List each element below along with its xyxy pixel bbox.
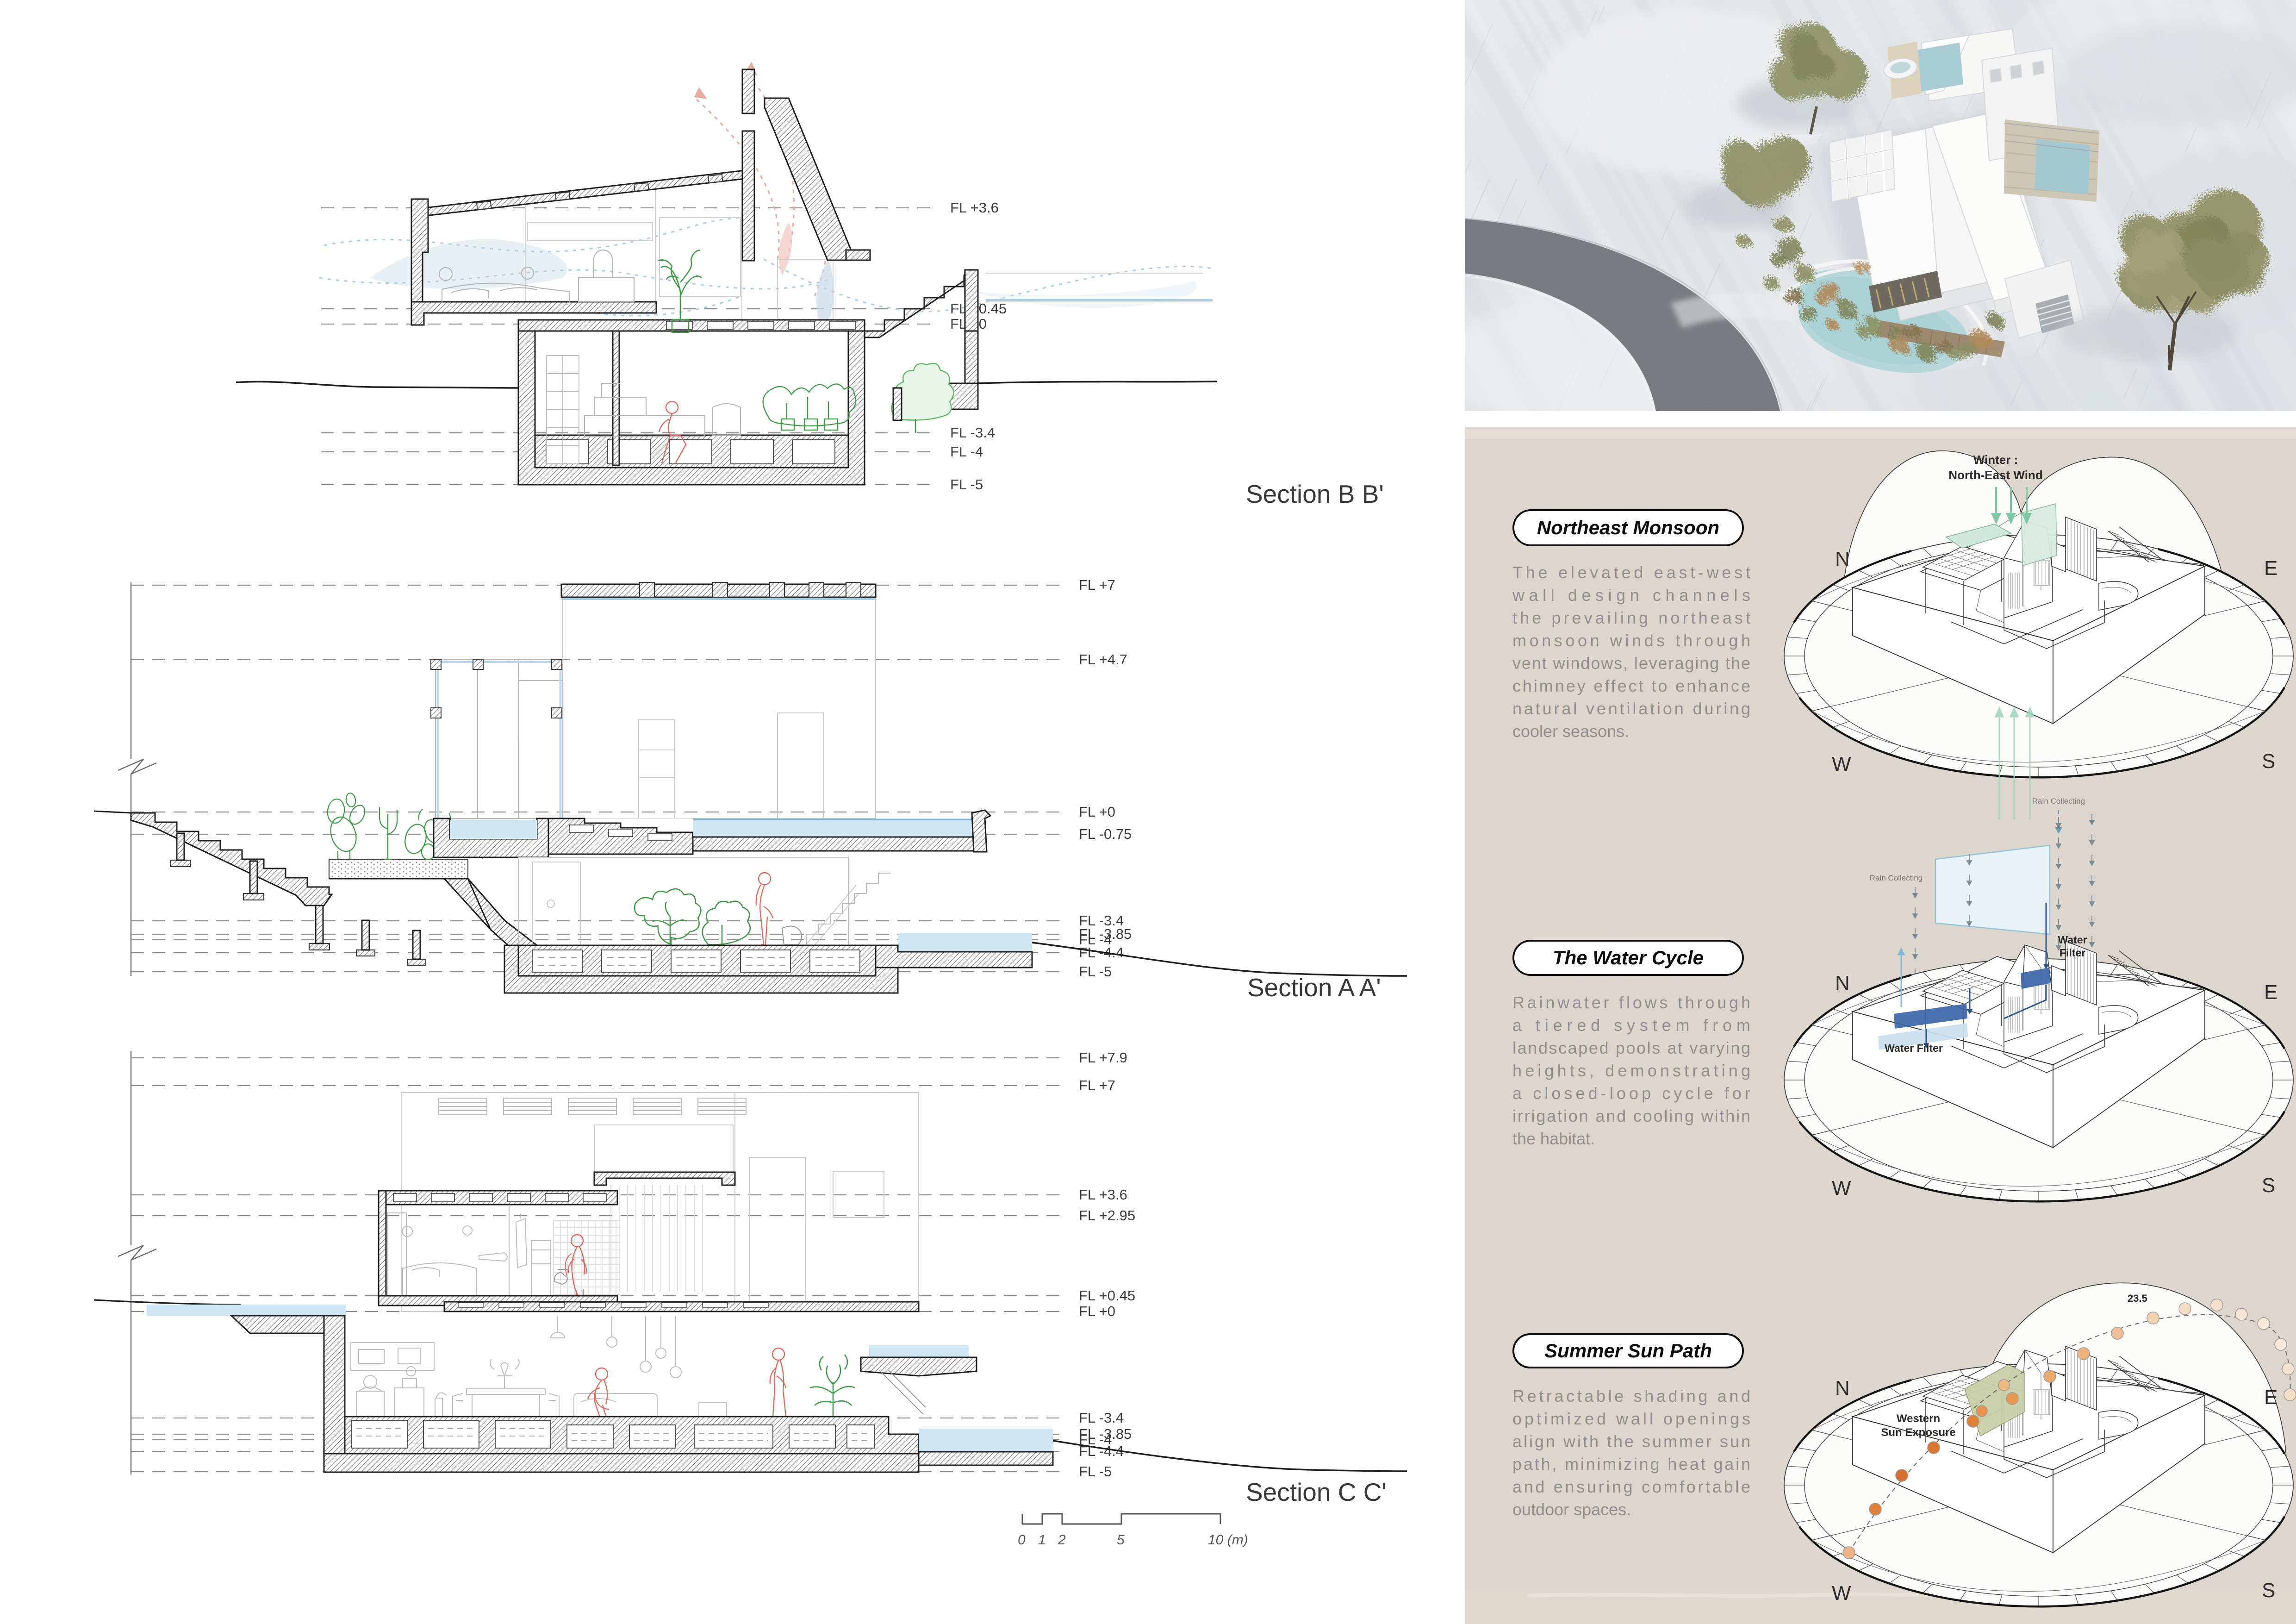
svg-text:Winter :: Winter : xyxy=(1973,453,2018,467)
svg-text:and ensuring comfortable: and ensuring comfortable xyxy=(1512,1477,1750,1496)
svg-text:E: E xyxy=(2264,1386,2277,1409)
svg-text:2: 2 xyxy=(1058,1532,1066,1548)
svg-text:heights, demonstrating: heights, demonstrating xyxy=(1512,1061,1750,1080)
svg-text:FL +7: FL +7 xyxy=(1079,1077,1115,1093)
svg-text:chimney effect to enhance: chimney effect to enhance xyxy=(1512,676,1750,695)
svg-text:North-East Wind: North-East Wind xyxy=(1948,468,2042,482)
svg-text:the habitat.: the habitat. xyxy=(1512,1129,1595,1148)
svg-text:1: 1 xyxy=(1038,1532,1046,1548)
svg-text:path, minimizing heat gain: path, minimizing heat gain xyxy=(1512,1455,1750,1474)
svg-text:FL +0: FL +0 xyxy=(1079,804,1115,820)
svg-text:S: S xyxy=(2262,1174,2275,1197)
svg-text:Section A A': Section A A' xyxy=(1247,973,1381,1002)
svg-text:Rain Collecting: Rain Collecting xyxy=(1870,874,1923,882)
svg-text:cooler seasons.: cooler seasons. xyxy=(1512,722,1629,741)
svg-text:E: E xyxy=(2264,981,2277,1004)
svg-text:the prevailing northeast: the prevailing northeast xyxy=(1512,608,1750,627)
svg-text:W: W xyxy=(1832,753,1851,775)
svg-text:N: N xyxy=(1835,548,1850,570)
svg-text:vent windows, leveraging the: vent windows, leveraging the xyxy=(1512,654,1750,673)
svg-text:FL +7.9: FL +7.9 xyxy=(1079,1049,1127,1066)
svg-text:S: S xyxy=(2262,750,2275,773)
svg-text:W: W xyxy=(1832,1177,1851,1199)
svg-text:Western: Western xyxy=(1897,1412,1940,1425)
svg-text:S: S xyxy=(2262,1579,2275,1602)
svg-text:FL -3.4: FL -3.4 xyxy=(950,425,995,441)
svg-text:Water Filter: Water Filter xyxy=(1885,1042,1943,1054)
svg-text:FL +3.6: FL +3.6 xyxy=(1079,1187,1127,1203)
svg-text:Water: Water xyxy=(2058,934,2087,946)
svg-text:FL +7: FL +7 xyxy=(1079,577,1115,593)
svg-text:a tiered system from: a tiered system from xyxy=(1512,1016,1750,1035)
svg-text:0: 0 xyxy=(1018,1532,1026,1548)
svg-text:10 (m): 10 (m) xyxy=(1208,1532,1248,1548)
svg-text:Filter: Filter xyxy=(2060,947,2085,959)
svg-text:E: E xyxy=(2264,557,2277,580)
svg-text:N: N xyxy=(1835,1377,1850,1399)
svg-text:Rain Collecting: Rain Collecting xyxy=(2032,797,2085,806)
svg-text:FL +0.45: FL +0.45 xyxy=(1079,1287,1135,1304)
svg-text:outdoor spaces.: outdoor spaces. xyxy=(1512,1500,1631,1519)
svg-text:N: N xyxy=(1835,972,1850,994)
svg-text:FL -0.75: FL -0.75 xyxy=(1079,826,1132,842)
svg-text:FL +3.6: FL +3.6 xyxy=(950,200,999,216)
svg-text:Section B B': Section B B' xyxy=(1246,480,1384,508)
svg-text:W: W xyxy=(1832,1582,1851,1605)
svg-text:FL -3.4: FL -3.4 xyxy=(1079,1410,1124,1426)
svg-text:FL +4.7: FL +4.7 xyxy=(1079,651,1127,668)
svg-text:irrigation and cooling within: irrigation and cooling within xyxy=(1512,1106,1750,1125)
svg-text:23.5: 23.5 xyxy=(2128,1293,2147,1304)
svg-text:5: 5 xyxy=(1117,1532,1125,1548)
svg-text:FL -5: FL -5 xyxy=(1079,1463,1112,1480)
svg-text:FL +0: FL +0 xyxy=(1079,1303,1115,1319)
svg-text:Sun Exposure: Sun Exposure xyxy=(1881,1426,1955,1439)
svg-text:align with the summer sun: align with the summer sun xyxy=(1512,1432,1750,1451)
svg-text:FL -5: FL -5 xyxy=(1079,963,1112,980)
svg-text:FL -4: FL -4 xyxy=(950,443,983,460)
svg-text:FL -5: FL -5 xyxy=(950,476,983,493)
svg-text:Section C C': Section C C' xyxy=(1246,1478,1387,1506)
svg-text:FL +2.95: FL +2.95 xyxy=(1079,1207,1135,1224)
